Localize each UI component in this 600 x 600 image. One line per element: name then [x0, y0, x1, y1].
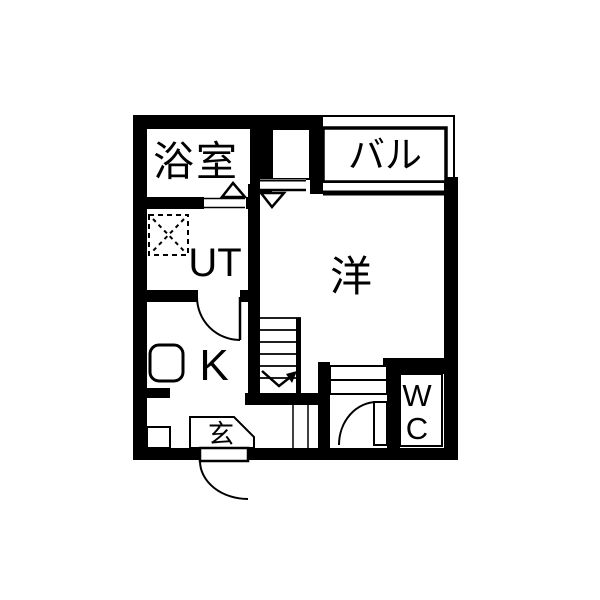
entrance-step-box: [147, 427, 170, 448]
balcony-label: バル: [348, 137, 422, 174]
wc-door-leaf: [374, 402, 387, 445]
washing-machine-x2: [153, 219, 184, 251]
triangle-up-marker: [222, 183, 245, 197]
wall-wc-left: [387, 374, 400, 448]
wall-outer-right: [444, 177, 458, 460]
stairs-treads: [260, 318, 301, 378]
wall-kitchen-top-right: [240, 290, 260, 302]
wall-stairs-bottom: [245, 393, 325, 405]
wc-door-arc: [339, 402, 377, 445]
triangle-down-marker: [261, 193, 284, 207]
bathroom-label: 浴室: [153, 142, 239, 183]
kitchen-sink: [150, 345, 183, 381]
western-room-label: 洋: [330, 256, 372, 298]
wc-label-line2: C: [402, 412, 431, 445]
wall-outer-top: [133, 115, 322, 129]
wall-below-bathroom-left: [140, 197, 204, 209]
wall-kitchen-stub: [146, 388, 170, 398]
wall-room-bottom: [383, 358, 458, 374]
wall-outer-left: [133, 115, 147, 460]
wall-hall-left: [318, 362, 330, 448]
entrance-label: 玄: [208, 421, 234, 447]
wall-outer-bottom: [133, 448, 458, 460]
kitchen-label: K: [199, 344, 228, 388]
stairs-right-edge: [296, 318, 301, 393]
entry-door-arc: [200, 461, 248, 499]
kitchen-door-arc: [197, 297, 240, 340]
washing-machine-x1: [153, 219, 184, 251]
entry-door-leaf: [200, 448, 248, 461]
stairs-arrow-head: [286, 371, 297, 383]
wc-label: W C: [402, 379, 431, 445]
floor-plan: 浴室 バル 洋 UT K 玄 W C: [0, 0, 600, 600]
wall-kitchen-top-left: [140, 290, 198, 302]
floor-plan-drawing: [0, 0, 600, 600]
closet-alcove: [272, 129, 310, 179]
wall-top-middle-pier: [310, 115, 323, 194]
utility-label: UT: [188, 243, 241, 283]
wc-label-line1: W: [402, 379, 431, 412]
